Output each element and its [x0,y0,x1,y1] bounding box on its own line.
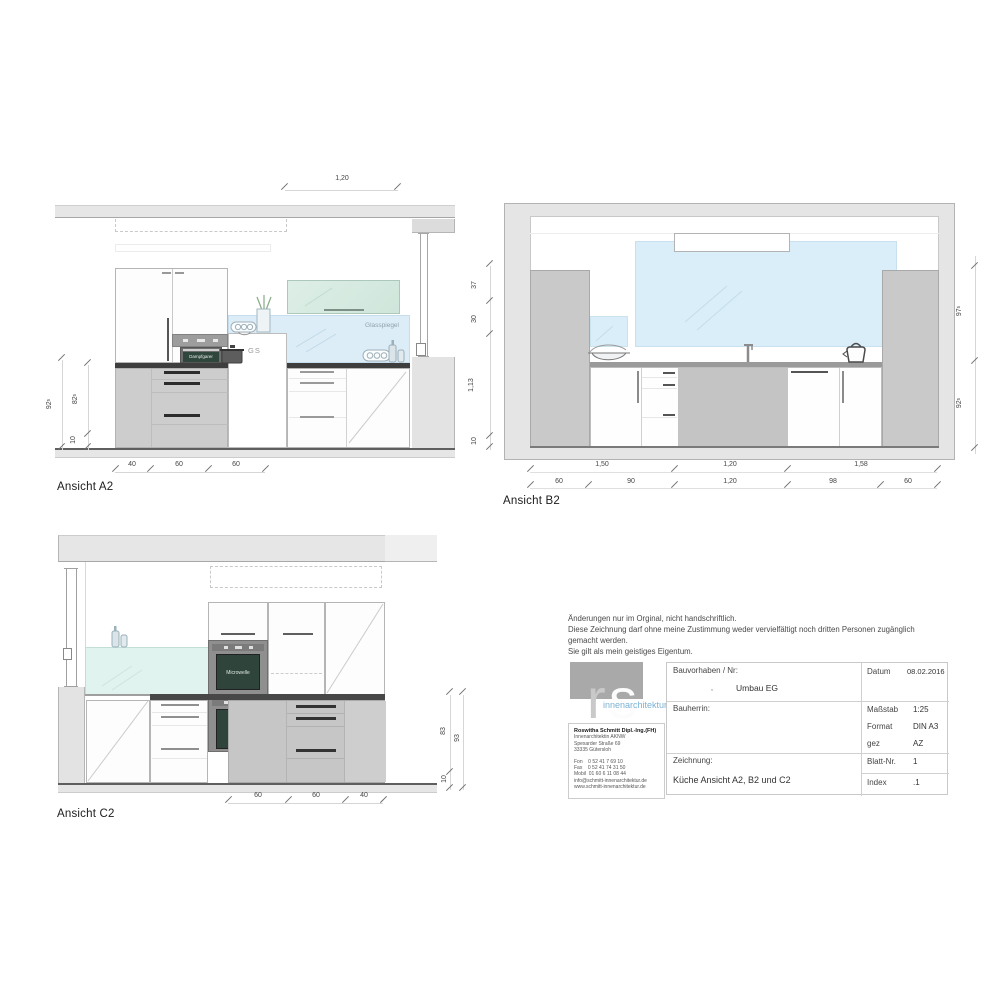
table-hline [667,701,949,702]
drawer-handle [300,382,334,384]
door-handle [637,371,639,403]
drawer-line [152,379,228,380]
a2-dim-60b: 60 [216,461,256,468]
c2-window-handle [63,648,72,660]
b2-dim-113: 1,13 [466,370,476,400]
a2-left-dim-line [62,360,63,450]
drawer-handle [663,414,675,416]
gs-label: GS [248,346,261,355]
cabinet-handle [162,272,171,274]
b2-dim-90: 90 [601,478,661,485]
b2-dim-158: 1,58 [831,461,891,468]
c2-island-gray [228,700,385,783]
drawer-handle [161,716,199,718]
dim-tick [459,688,466,695]
c2-wall-cabinet-mid [268,602,325,695]
drawer-line [287,726,344,727]
a2-window-frame-cap [418,233,429,234]
copyright-notice-line: Sie gilt als mein geistiges Eigentum. [568,647,693,656]
drawer-line [152,758,207,759]
cabinet-divider [344,701,345,782]
contact-web: www.schmitt-innenarchitektur.de [574,784,659,790]
shelf-dashed-line [271,673,322,674]
island-side-panel [344,701,386,782]
b2-base-run [590,367,882,448]
dim-tick [784,481,791,488]
drawer-handle [161,704,199,706]
a2-dim-40: 40 [112,461,152,468]
table-hline [667,753,949,754]
drawer-handle [296,717,336,720]
c2-left-wall-bottom [58,687,85,783]
a2-dim-60: 60 [159,461,199,468]
field-format-value: DIN A3 [913,722,938,731]
drawer-line [287,713,344,714]
c2-base-cabinet-diag [86,700,150,783]
drawer-handle [300,371,334,373]
b2-right-dim-line [975,256,976,454]
cabinet-divider [172,269,173,362]
b2-floor-line [530,446,939,448]
field-project-value: Umbau EG [736,683,778,693]
c2-dim-60b: 60 [296,792,336,799]
field-gez-value: AZ [913,739,923,748]
a2-top-dim-line [285,190,398,191]
drawer-handle [663,372,675,374]
b2-dim-60b: 60 [878,478,938,485]
field-zeichnung-label: Zeichnung: [673,756,713,765]
a2-base-cabinet-gray [115,368,228,448]
mirror-mount [324,309,364,311]
copyright-notice-line: Änderungen nur im Orginal, nicht handsch… [568,614,737,623]
a2-base-cabinet-white [287,368,410,448]
b2-bottom-dim-line2 [530,488,937,489]
c2-right-dim-line-inner [450,695,451,790]
drawing-sheet: 1,20 Glasspiegel Dampfgarer GS [0,0,999,998]
c2-dim-83: 83 [438,716,448,746]
drawer-line [152,725,207,726]
drawer-handle [164,414,200,417]
drawer-handle [663,384,675,386]
b2-dim-30: 30 [469,304,479,334]
field-format-label: Format [867,722,892,731]
field-datum-value: 08.02.2016 [907,667,945,676]
dim-tick [205,465,212,472]
control-mark [197,339,205,342]
drawer-line [289,378,346,379]
field-zeichnung-value: Küche Ansicht A2, B2 und C2 [673,775,791,785]
a2-vent-outline [115,244,271,252]
c2-ceiling-wall-right [385,535,437,562]
field-blatt-value: 1 [913,757,917,766]
b2-left-dim-line [490,266,491,450]
dim-tick [262,465,269,472]
drawer-handle [791,371,828,373]
drawer-line [289,391,346,392]
dim-tick [671,481,678,488]
c2-counter-thin [85,694,150,696]
c2-right-dim-line-outer [463,695,464,790]
a2-ceiling-wall [55,205,455,218]
field-blatt-label: Blatt-Nr. [867,757,896,766]
a2-gs-tall-unit: GS [228,333,287,448]
a2-left-dim-line-inner [88,365,89,450]
cabinet-divider [641,368,642,447]
c2-bottles-icon [112,626,127,647]
field-project-mark: , [711,685,713,692]
c2-window-frame-line [66,568,67,687]
field-bauherrin-label: Bauherrin: [673,704,710,713]
table-vline [861,663,862,796]
b2-window-glass [635,241,897,347]
field-massstab-label: Maßstab [867,705,898,714]
cabinet-handle [221,633,255,635]
a2-dim-10: 10 [68,425,78,455]
control-mark [213,339,218,342]
c2-window-frame-line [76,568,77,687]
b2-dim-60a: 60 [529,478,589,485]
a2-dim-92-5: 925 [44,389,54,419]
copyright-notice-line: Diese Zeichnung darf ohne meine Zustimmu… [568,625,915,634]
dim-tick [934,465,941,472]
drawer-handle [161,748,199,750]
b2-dim-97-5: 975 [954,296,964,326]
c2-dim-10: 10 [439,764,449,794]
cabinet-divider [346,369,347,447]
drawer-line [152,392,228,393]
door-handle [842,371,844,403]
dim-tick [285,796,292,803]
c2-base-drawers-white [150,700,208,783]
c2-glass-splashback [85,647,210,695]
dim-tick [784,465,791,472]
drawer-line [642,377,677,378]
drawer-handle [300,416,334,418]
control-strip [212,644,264,651]
drawer-line [287,758,344,759]
b2-dim-92-5: 925 [954,388,964,418]
drawer-line [152,712,207,713]
c2-window-frame-cap [64,568,78,569]
a2-right-wall-bottom [412,357,455,448]
a2-window-frame-line [427,233,428,357]
b2-hood [674,233,790,252]
a2-dim-82-5: 825 [70,384,80,414]
logo-subtitle: innenarchitektur [570,700,667,710]
drawer-handle [164,382,200,385]
control-mark [249,646,253,649]
b2-dim-10: 10 [469,426,479,456]
field-bauvorhaben-label: Bauvorhaben / Nr: [673,666,738,675]
cabinet-handle [175,272,184,274]
control-mark [183,339,188,342]
dim-tick [281,183,288,190]
b2-dim-120b: 1,20 [700,478,760,485]
c2-wall-cabinet-over-mw [208,602,268,641]
glasspiegel-label: Glasspiegel [365,322,399,329]
contact-block: Roswitha Schmitt Dipl.-Ing.(FH) Innenarc… [568,723,665,799]
titleblock-table: Bauvorhaben / Nr: , Umbau EG Bauherrin: … [666,662,948,795]
b2-tall-cabinet-right [882,270,939,448]
b2-bottom-dim-line1 [530,472,937,473]
copyright-notice-line: gemacht werden. [568,636,628,645]
microwave-screen: Microwelle [216,654,260,690]
b2-splashback-left [590,316,628,347]
c2-bulkhead-dashed [210,566,382,588]
b2-dim-98: 98 [803,478,863,485]
c2-bottom-dim-line [228,803,383,804]
drawer-handle [296,705,336,708]
dim-tick [671,465,678,472]
a2-mirror-glass [287,280,400,314]
a2-steam-oven: Dampfgarer [180,347,222,363]
drawer-handle [164,371,200,374]
field-index-label: Index [867,778,887,787]
dim-tick [446,688,453,695]
a2-floor [55,448,455,458]
c2-wall-cabinet-right [325,602,385,695]
steam-oven-label: Dampfgarer [183,352,219,362]
control-mark [224,646,228,649]
a2-bulkhead-dashed [115,219,287,232]
c2-dim-93: 93 [452,723,462,753]
field-massstab-value: 1:25 [913,705,929,714]
b2-dim-120: 1,20 [700,461,760,468]
field-index-value: .1 [913,778,920,787]
b2-base-center-panel [678,368,788,447]
c2-microwave: Microwelle [208,640,268,695]
dim-tick [225,796,232,803]
c2-dim-40: 40 [344,792,384,799]
a2-view-label: Ansicht A2 [57,481,113,493]
table-hline [861,773,949,774]
drawer-line [642,388,677,389]
a2-window-frame-line [420,233,421,357]
drawer-line [642,417,677,418]
control-mark [235,646,242,649]
b2-dim-37: 37 [469,270,479,300]
a2-window-handle [416,343,426,356]
b2-view-label: Ansicht B2 [503,495,560,507]
a2-right-wall-top [412,219,455,233]
field-gez-label: gez [867,739,880,748]
drawer-line [152,424,228,425]
b2-dim-150: 1,50 [572,461,632,468]
cabinet-divider [839,368,840,447]
a2-bottom-dim-line [115,472,265,473]
cabinet-handle [283,633,313,635]
appliance-handle [183,349,219,351]
drawer-handle [296,749,336,752]
c2-view-label: Ansicht C2 [57,808,115,820]
a2-hob-panel [172,334,228,347]
cabinet-divider [151,369,152,447]
c2-dim-60a: 60 [238,792,278,799]
field-datum-label: Datum [867,667,891,676]
dim-tick [394,183,401,190]
a2-top-dim: 1,20 [312,175,372,182]
c2-ceiling-wall [58,535,385,562]
b2-tall-cabinet-left [530,270,590,448]
drawing-detail-overlay [0,0,999,998]
dim-tick [527,465,534,472]
